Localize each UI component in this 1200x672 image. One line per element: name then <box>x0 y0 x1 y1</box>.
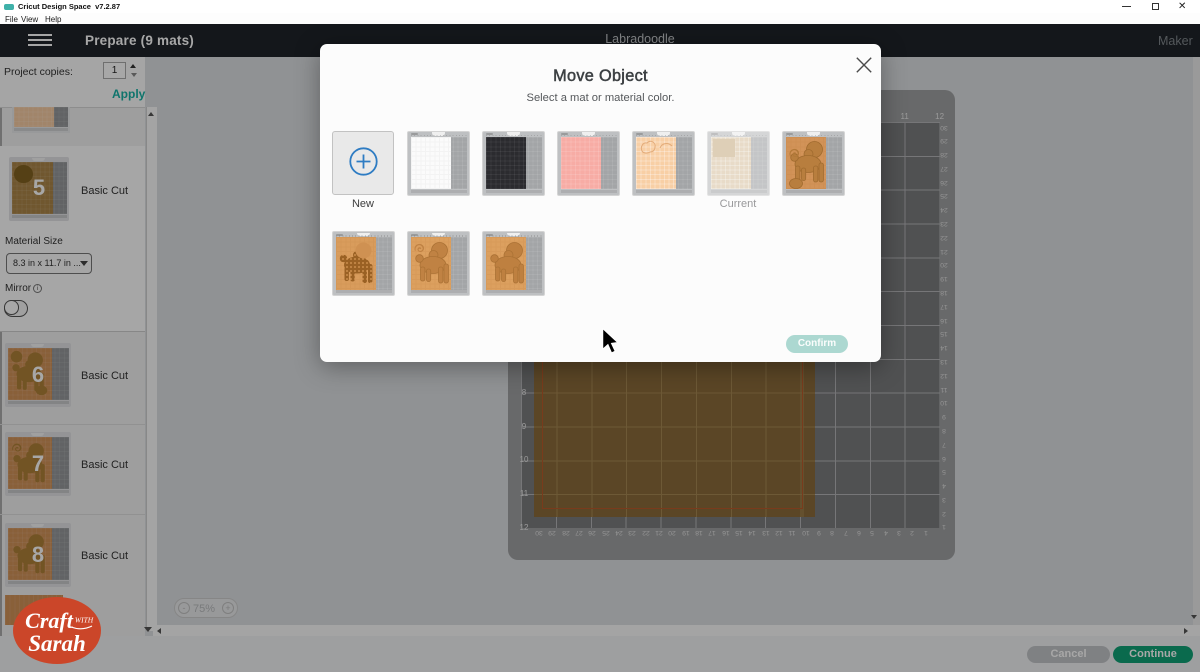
svg-text:WITH: WITH <box>75 616 94 625</box>
svg-text:Craft: Craft <box>25 608 74 633</box>
svg-text:Sarah: Sarah <box>28 631 86 656</box>
